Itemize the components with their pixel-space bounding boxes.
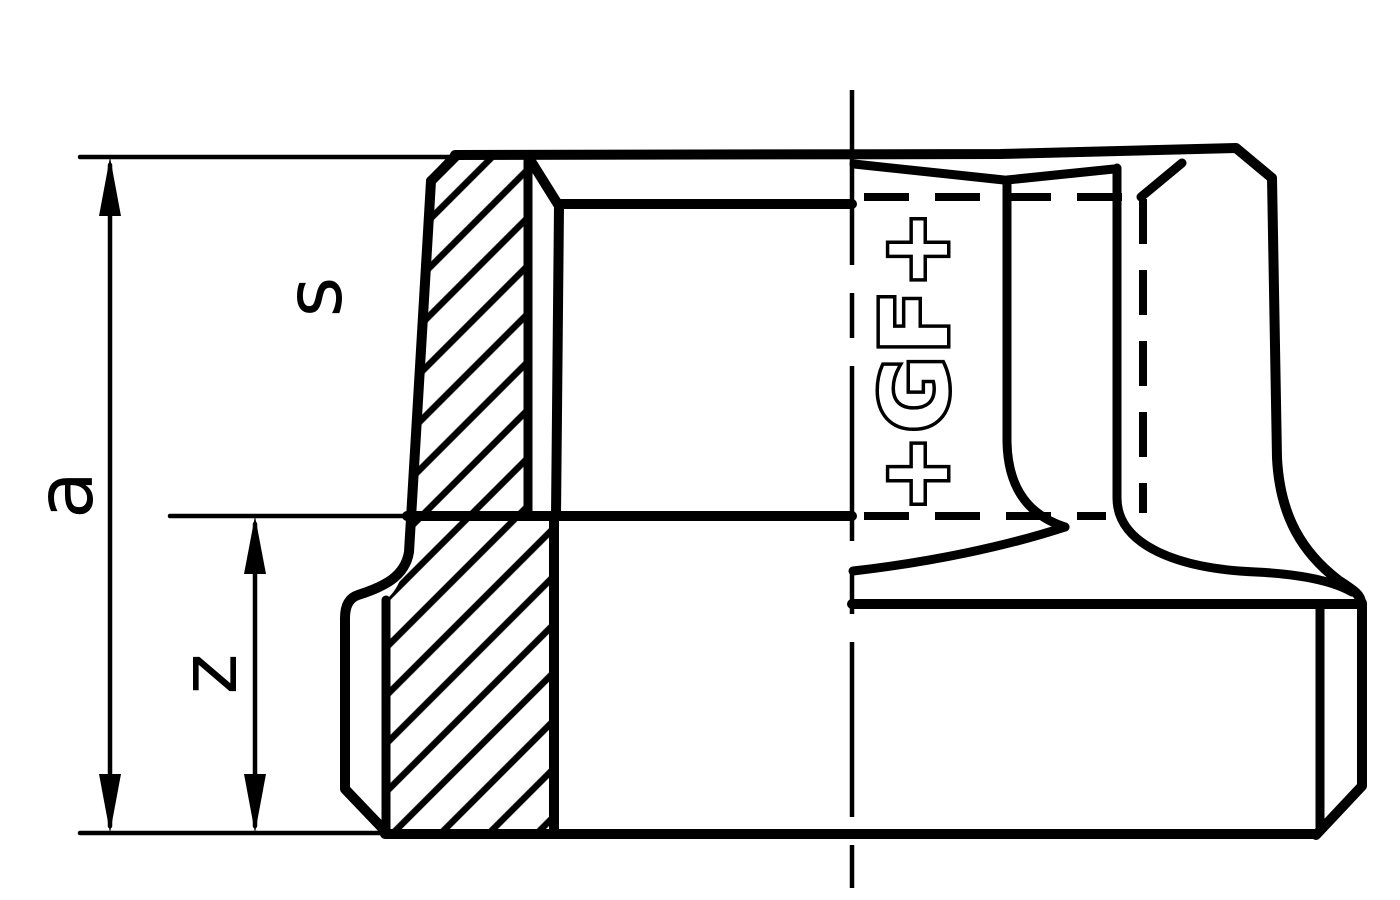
technical-drawing-canvas: a z s +GF+ — [0, 0, 1400, 900]
arrowhead-z-up-icon — [244, 516, 266, 574]
label-s: s — [270, 277, 360, 318]
hex-top-chamfer-edge — [1141, 163, 1182, 197]
gf-logo: +GF+ — [862, 208, 969, 513]
section-hatching-upper-wall — [340, 140, 570, 530]
hex-flat-edge-inner — [1007, 180, 1065, 527]
arrowhead-a-down-icon — [99, 774, 121, 833]
right-outer-silhouette — [1272, 178, 1361, 602]
label-a: a — [21, 471, 111, 519]
hex-flare-valley-curve — [853, 527, 1065, 571]
section-hatching-lower-wall — [370, 500, 570, 850]
top-face-rim-edge — [1007, 169, 1114, 180]
top-face-cone-edge — [854, 164, 1004, 180]
hex-flat-edge-outer — [1117, 168, 1352, 592]
female-bore-edge — [529, 158, 559, 516]
fitting-half-section-drawing: a z s +GF+ — [0, 0, 1400, 900]
label-z: z — [165, 654, 255, 695]
arrowhead-a-up-icon — [99, 157, 121, 216]
arrowhead-z-down-icon — [244, 774, 266, 833]
dimension-z: z — [165, 516, 404, 833]
